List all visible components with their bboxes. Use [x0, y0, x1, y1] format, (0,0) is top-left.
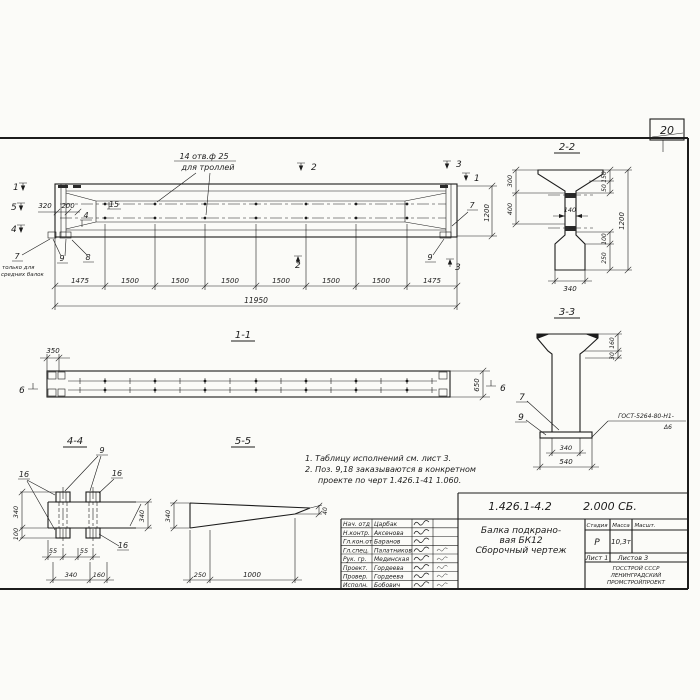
section-1-1: 1-1 350 6 6 650 [19, 330, 506, 400]
dims-right: 340 [136, 499, 152, 531]
cut-markers-right: 2 2 3 3 1 [294, 160, 480, 273]
cut-label: 4 [11, 225, 17, 235]
page-number: 20 [660, 124, 674, 137]
view-title: 1-1 [235, 330, 251, 341]
weld-callout: ГОСТ-5264-80-Н1- Δ6 [592, 413, 686, 437]
pos-label: 7 [519, 393, 525, 403]
holes-note-line1: 14 отв.ф 25 [179, 152, 228, 161]
cut-marker-6-left: 6 [19, 383, 38, 396]
general-notes: 1. Таблицу исполнений см. лист 3. 2. Поз… [305, 454, 476, 485]
title-block: 1.426.1-4.2 2.000 СБ. Балка подкрано- ва… [341, 493, 688, 589]
sig-role: Проект. [343, 565, 368, 572]
section-2-2: 2-2 140 300 400 150 50 100 250 1200 340 [506, 142, 632, 293]
pos-label: 16 [19, 470, 29, 479]
dim-label: 340 [12, 506, 20, 518]
dim-label: 1200 [483, 204, 491, 222]
dim-350: 350 [40, 347, 70, 371]
dim-label: 100 [12, 528, 20, 540]
doc-number: 1.426.1-4.2 [488, 500, 551, 513]
sig-name: Баранов [374, 539, 401, 546]
drawing-title-line2: вая БК12 [499, 536, 542, 546]
note-line: 1. Таблицу исполнений см. лист 3. [305, 454, 451, 463]
dim-label: 1200 [618, 212, 626, 230]
dim-label: 1500 [121, 277, 139, 285]
dim-label: 650 [473, 378, 481, 392]
pos-label: 4 [83, 211, 88, 220]
cut-label: 3 [455, 263, 461, 273]
dim-label: 140 [564, 206, 576, 214]
dim-label: 340 [563, 285, 577, 293]
dim-label: 320 [38, 202, 52, 210]
signature-table: Нач. отд Царбак Н.контр. Аксенова Гл.кон… [343, 521, 448, 590]
pos-label: 7 [469, 201, 475, 210]
dims-bottom: 340 540 [533, 438, 599, 470]
dim-label: 300 [506, 175, 514, 187]
col-scale-header: Масшт. [634, 523, 655, 529]
col-stage-header: Стадия [586, 523, 608, 529]
weld-note-line1: ГОСТ-5264-80-Н1- [618, 413, 674, 420]
doc-code: 2.000 СБ. [583, 500, 637, 513]
dim-label: 1475 [423, 277, 441, 285]
view-title: 3-3 [559, 307, 575, 318]
dim-label: 30 [609, 352, 616, 360]
sig-role: Н.контр. [343, 530, 370, 537]
sig-role: Гл.кон.от [343, 539, 373, 546]
dim-label: 1500 [171, 277, 189, 285]
dim-label: 160 [93, 571, 105, 579]
dim-label: 350 [46, 347, 60, 355]
pos-label: 9 [99, 446, 104, 455]
pos-label: 16 [118, 541, 128, 550]
sig-name: Гордеева [374, 565, 404, 572]
org-line2: ЛЕНИНГРАДСКИЙ [610, 572, 661, 579]
cut-label: 6 [19, 386, 25, 396]
position-labels: 9 16 16 16 [18, 446, 129, 550]
signature-scribbles [414, 521, 448, 587]
note-line: 2. Поз. 9,18 заказываются в конкретном [305, 465, 476, 474]
sig-name: Аксенова [373, 530, 404, 537]
cut-label: 5 [11, 203, 17, 213]
pos-label: 9 [518, 413, 524, 423]
dim-140: 140 [553, 206, 588, 218]
dim-label: 50 [601, 184, 608, 192]
sheets-total: Листов 3 [617, 554, 648, 562]
pos-label: 9 [427, 253, 432, 262]
cut-label: 6 [500, 384, 506, 394]
dim-label: 200 [61, 202, 75, 210]
dim-650: 650 [450, 368, 490, 400]
trolley-holes [105, 204, 407, 218]
dim-label: 340 [138, 510, 146, 522]
pos-label: 15 [109, 200, 119, 209]
view-title: 5-5 [235, 436, 251, 447]
cut-label: 1 [474, 174, 480, 184]
end-dims: 320 200 [38, 202, 81, 215]
dim-label: 250 [601, 252, 608, 264]
dim-label: 1000 [243, 571, 261, 579]
dims-left: 340 100 [12, 489, 56, 541]
cut-label: 3 [456, 160, 462, 170]
dim-label-total: 11950 [244, 296, 268, 305]
dim-label: 40 [322, 507, 329, 515]
pos-label: 16 [112, 469, 122, 478]
drawing-title-line1: Балка подкрано- [481, 526, 561, 536]
dim-label: 540 [559, 458, 573, 466]
dim-label: 55 [49, 547, 57, 555]
dim-label: 340 [560, 444, 572, 452]
sig-role: Рук. гр. [343, 556, 367, 563]
dim-label: 160 [609, 337, 616, 349]
dim-label: 100 [601, 233, 608, 245]
cut-markers-left: 1 5 4 [11, 183, 27, 235]
dim-label: 1500 [322, 277, 340, 285]
dims-right: 150 50 100 250 1200 [576, 167, 632, 273]
sig-role: Провер. [343, 574, 368, 581]
col-mass-header: Масса [612, 523, 630, 529]
pos-label: 7 [14, 252, 20, 261]
drawing-title-line3: Сборочный чертеж [475, 546, 567, 556]
mass-value: 10,3т [611, 538, 632, 546]
cut-label: 1 [13, 183, 19, 193]
weld-note-line2: Δ6 [663, 424, 672, 431]
sig-role: Нач. отд [343, 521, 370, 528]
dims-left: 300 400 [506, 167, 565, 227]
holes-note-line2: для троллей [181, 163, 235, 172]
cut-marker-6-right: 6 [486, 380, 506, 394]
sig-name: Палатников [374, 548, 412, 555]
drawing-sheet: 20 14 отв.ф 25 для троллей 1 5 4 320 200 [0, 0, 700, 700]
page-number-box: 20 [650, 119, 684, 152]
dim-bottom: 340 [548, 270, 592, 293]
dim-label: 150 [601, 171, 608, 183]
dim-label: 250 [194, 571, 206, 579]
sig-role: Гл.спец. [343, 548, 369, 555]
org-line3: ПРОМСТРОЙПРОЕКТ [607, 579, 666, 586]
sig-name: Бобович [374, 582, 401, 589]
sig-name: Мединская [374, 556, 409, 563]
view-title: 2-2 [559, 142, 575, 153]
org-line1: ГОССТРОЙ СССР [613, 565, 660, 572]
main-elevation-view: 14 отв.ф 25 для троллей 1 5 4 320 200 15… [1, 152, 497, 310]
sig-name: Гордеева [374, 574, 404, 581]
blueprint-canvas: 20 14 отв.ф 25 для троллей 1 5 4 320 200 [0, 0, 700, 700]
dim-label: 1475 [71, 277, 89, 285]
dim-label: 400 [506, 203, 514, 215]
dim-1200-right: 1200 [457, 183, 497, 239]
dim-label: 1500 [221, 277, 239, 285]
dim-label: 1500 [372, 277, 390, 285]
dim-label: 340 [164, 510, 172, 522]
dim-label: 340 [65, 571, 77, 579]
section-3-3: 3-3 160 30 7 9 ГОСТ-5264-80-Н1- Δ6 340 5… [515, 307, 686, 470]
pos-note-line1: только для [2, 265, 35, 271]
sheet-number: Лист 1 [585, 554, 609, 562]
dims: 340 40 250 1000 [164, 500, 329, 583]
cut-label: 2 [311, 163, 317, 173]
detail-4-4: 4-4 9 16 16 16 340 100 340 55 55 340 160 [12, 436, 152, 583]
dim-label: 1500 [272, 277, 290, 285]
note-line: проекте по черт 1.426.1-41 1.060. [318, 476, 461, 485]
sig-role: Исполн. [343, 582, 368, 589]
pos-note-line2: средних балок [1, 272, 45, 278]
pos-label: 9 [59, 254, 64, 263]
stage-value: Р [594, 538, 600, 548]
view-title: 4-4 [67, 436, 83, 447]
dims-bottom: 55 55 340 160 [42, 540, 114, 583]
dim-label: 55 [80, 547, 88, 555]
sig-name: Царбак [374, 521, 398, 528]
